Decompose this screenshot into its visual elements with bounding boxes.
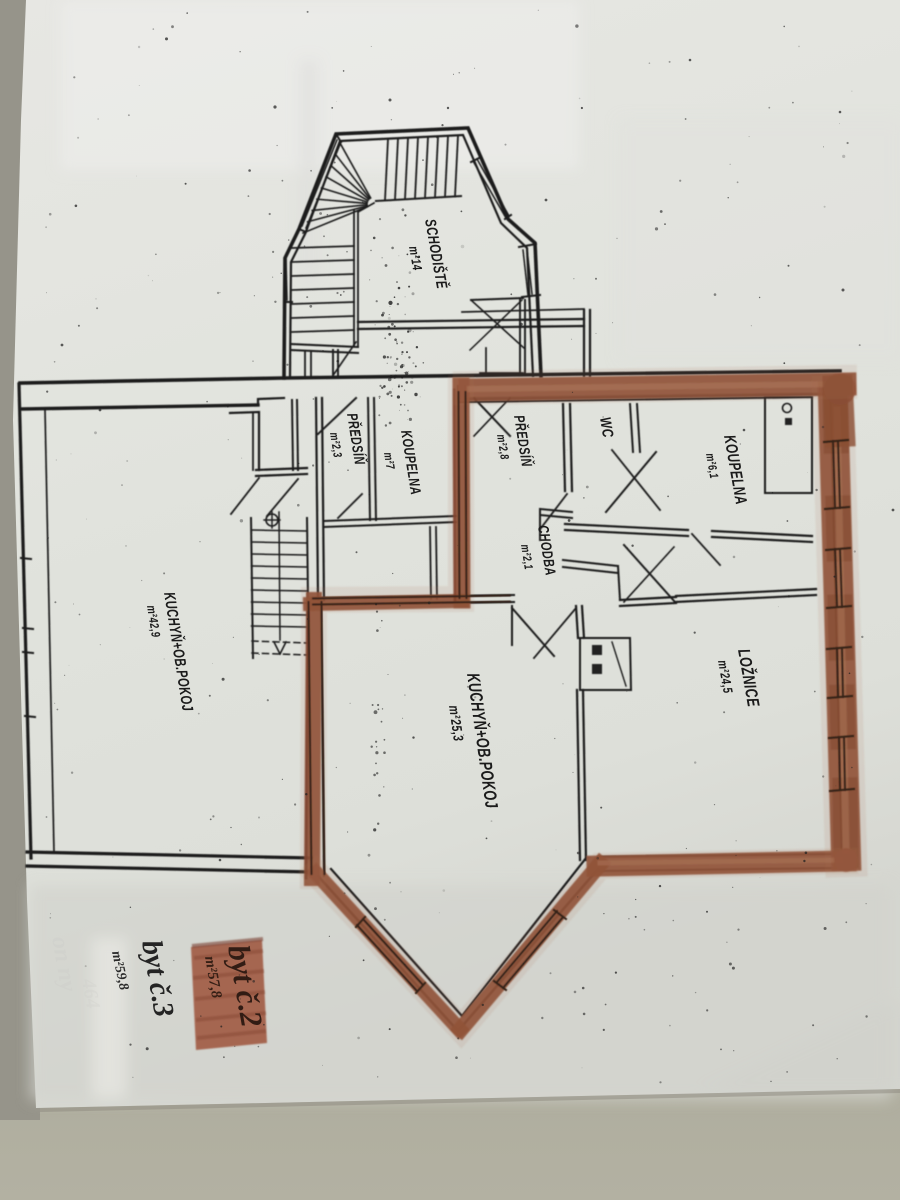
svg-text:m²7: m²7 — [381, 451, 397, 471]
svg-text:WC: WC — [597, 416, 617, 440]
